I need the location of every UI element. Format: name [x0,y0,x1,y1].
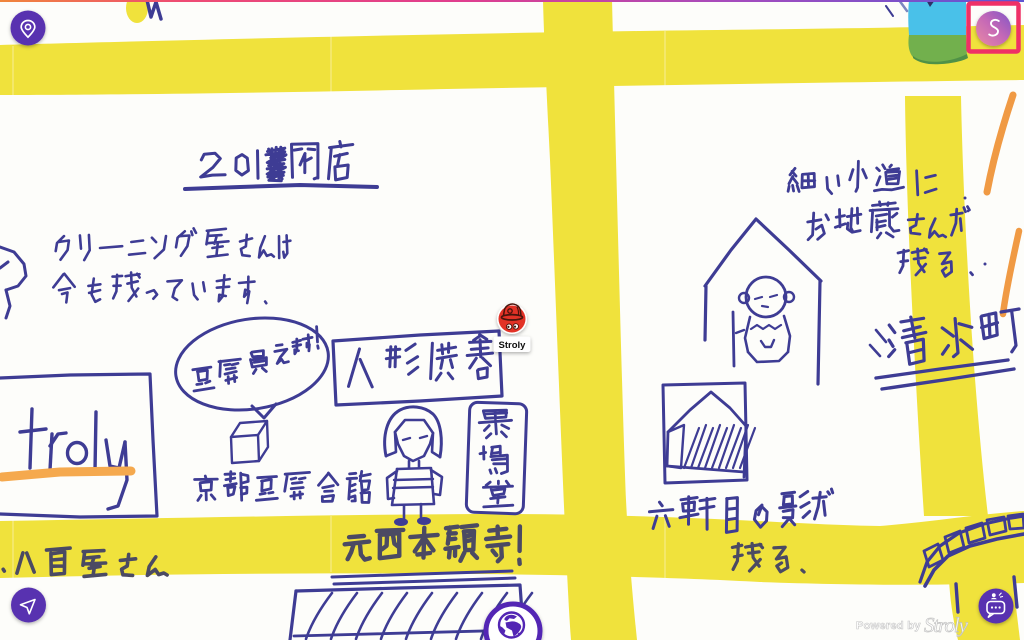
svg-text:Stroly: Stroly [499,340,527,351]
svg-text:Stroly: Stroly [924,613,969,637]
svg-text:Powered by: Powered by [856,620,921,632]
